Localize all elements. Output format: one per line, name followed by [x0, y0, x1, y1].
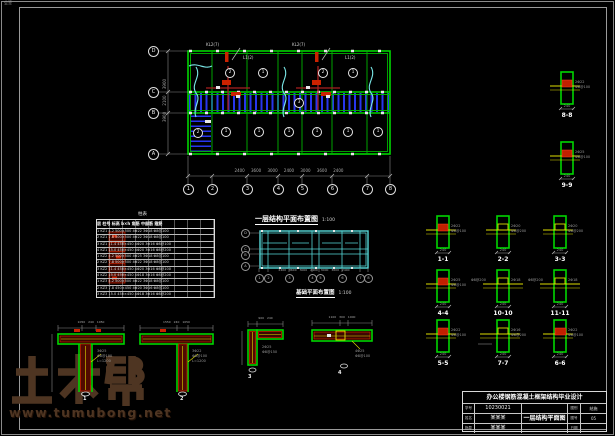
axis-bubble: 1	[183, 184, 194, 195]
section-5-5: 240 2Φ22 Φ8@100	[426, 320, 466, 358]
section-label: 3-3	[546, 256, 574, 263]
section-3-3: 240 2Φ20 Φ8@200	[543, 216, 583, 254]
section-note: 2Φ22	[575, 80, 584, 84]
main-plan-title: 一层结构平面布置图1:100	[255, 206, 335, 225]
field-label: 日期	[568, 424, 581, 433]
field-value: 某某某	[475, 424, 522, 433]
section-dim: 240	[557, 248, 564, 252]
section-note: 2Φ25	[575, 150, 584, 154]
detail-note: Φ8@150	[262, 350, 277, 354]
beam-note: KL2(7)	[206, 42, 219, 47]
joint-detail-label: 3	[248, 374, 251, 380]
section-note: 2Φ18	[568, 278, 577, 282]
section-1-1: 240 2Φ22 Φ8@100	[426, 216, 466, 254]
column-detail-crosses	[206, 48, 340, 110]
detail-note: Φ8@100	[97, 354, 112, 358]
axis-bubble-foundation: 6	[338, 274, 347, 283]
axis-bubble-foundation: 8	[364, 274, 373, 283]
section-7-7: 240 2Φ16 Φ8@200	[478, 320, 526, 358]
corner-note: 会签	[4, 0, 12, 6]
section-note: Φ8@200	[528, 278, 543, 282]
section-dim: 240	[440, 352, 447, 356]
main-plan-grid	[188, 51, 390, 154]
section-dim: 240	[564, 174, 571, 178]
section-2-2: 240 2Φ20 Φ8@200	[486, 216, 526, 254]
dim-chain-left: 3900 2100 3900	[162, 49, 167, 152]
field-value: 05	[581, 414, 606, 423]
section-label: 4-4	[429, 310, 457, 317]
axis-bubble-foundation: B	[241, 251, 250, 260]
main-plan-scale: 1:100	[322, 218, 335, 223]
section-8-8: 240 2Φ22 Φ8@100	[550, 72, 590, 110]
field-label: 图别	[568, 404, 581, 413]
section-dim: 240	[564, 104, 571, 108]
axis-bubble-foundation: A	[241, 262, 250, 271]
drawing-name-cell	[522, 404, 568, 413]
joint-detail-label: 1	[83, 396, 86, 402]
slab-number: 2	[318, 68, 328, 78]
detail-note: L=1200	[97, 359, 111, 363]
joint-detail-dim: 1050 240 1050	[58, 320, 124, 324]
slab-number: 1	[312, 127, 322, 137]
section-6-6: 240 2Φ22 Φ8@100	[543, 320, 583, 358]
section-dim: 240	[557, 352, 564, 356]
section-dim: 240	[500, 302, 507, 306]
section-label: 7-7	[489, 360, 517, 367]
title-block-row: 学号 10230021 图别 结施	[463, 404, 606, 414]
field-value	[581, 424, 606, 433]
cad-sheet: 会签 www.tumubong.net	[0, 0, 615, 436]
axis-bubble-foundation: 3	[285, 274, 294, 283]
joint-detail-dim: 900 240	[248, 316, 283, 320]
section-note: Φ8@100	[451, 283, 466, 287]
section-11-11: 240 2Φ18 Φ8@200	[528, 270, 580, 308]
joint-detail-label: 4	[338, 370, 341, 376]
field-value: 某某某	[475, 414, 522, 423]
axis-bubble: 4	[273, 184, 284, 195]
title-block-project: 办公楼钢筋混凝土框架结构毕业设计	[463, 392, 606, 404]
section-note: Φ8@200	[568, 229, 583, 233]
slab-number: 2	[193, 128, 203, 138]
section-label: 1-1	[429, 256, 457, 263]
section-label: 6-6	[546, 360, 574, 367]
section-label: 11-11	[546, 310, 574, 317]
joint-detail-4: 4Φ25 Φ8@100	[312, 320, 372, 368]
axis-bubble-foundation: 1	[255, 274, 264, 283]
axis-bubble: D	[148, 46, 159, 57]
joint-detail-2: 3Φ22 Φ8@100 L=1200	[140, 325, 213, 396]
detail-note: 3Φ25	[97, 349, 106, 353]
foundation-plan-scale: 1:100	[339, 291, 352, 296]
axis-bubble: B	[148, 108, 159, 119]
field-value: 10230021	[475, 404, 522, 413]
section-note: 2Φ22	[568, 328, 577, 332]
section-dim: 240	[440, 248, 447, 252]
axis-bubble: 2	[207, 184, 218, 195]
field-value: 结施	[581, 404, 606, 413]
detail-note: 3Φ22	[192, 349, 201, 353]
section-dim: 240	[440, 302, 447, 306]
axis-bubble: 3	[242, 184, 253, 195]
section-label: 9-9	[553, 182, 581, 189]
joint-detail-dim: 1100 300 1000	[312, 315, 372, 319]
table-header: 层 柱号 标高 b×h 角筋 中部筋 箍筋	[97, 220, 214, 229]
field-label: 学号	[463, 404, 475, 413]
section-note: 2Φ18	[511, 278, 520, 282]
axis-bubble: 7	[362, 184, 373, 195]
section-note: 2Φ20	[511, 224, 520, 228]
slab-number: 1	[373, 127, 383, 137]
section-note: 2Φ25	[451, 278, 460, 282]
axis-bubble: 8	[385, 184, 396, 195]
section-note: 2Φ16	[511, 328, 520, 332]
section-note: Φ8@100	[451, 333, 466, 337]
axis-bubble-foundation: D	[241, 229, 250, 238]
detail-note: L=1200	[192, 359, 206, 363]
section-label: 10-10	[489, 310, 517, 317]
joint-detail-3: 2Φ25 Φ8@150	[242, 321, 283, 372]
drawing-name: 一层结构平面图	[522, 414, 568, 423]
joint-detail-label: 2	[180, 396, 183, 402]
section-note: 2Φ22	[451, 224, 460, 228]
section-note: Φ8@100	[568, 333, 583, 337]
dim-chain-bottom: 2400 3600 3000 2400 3000 3600 2400	[188, 168, 390, 173]
section-dim: 240	[500, 248, 507, 252]
section-dim: 240	[500, 352, 507, 356]
section-dim: 240	[557, 302, 564, 306]
slab-number: 2	[225, 68, 235, 78]
section-note: 2Φ20	[568, 224, 577, 228]
title-block-row: 姓名 某某某 一层结构平面图 图号 05	[463, 414, 606, 424]
beam-note: L1(2)	[345, 55, 355, 60]
detail-note: Φ8@100	[355, 354, 370, 358]
slab-number: 1	[348, 68, 358, 78]
title-block: 办公楼钢筋混凝土框架结构毕业设计 学号 10230021 图别 结施 姓名 某某…	[462, 391, 607, 432]
axis-bubble: C	[148, 87, 159, 98]
slab-number: 3	[294, 98, 304, 108]
axis-bubble: A	[148, 149, 159, 160]
section-note: Φ8@200	[471, 278, 486, 282]
detail-note: Φ8@100	[192, 354, 207, 358]
axis-bubble-foundation: 5	[316, 274, 325, 283]
section-label: 5-5	[429, 360, 457, 367]
axis-bubble: 6	[327, 184, 338, 195]
table-row: 3 KZ3 15.0 450×450 4Φ18 3Φ16 Φ8@200	[97, 292, 214, 297]
field-label: 姓名	[463, 414, 475, 423]
section-10-10: 240 2Φ18 Φ8@200	[471, 270, 523, 308]
foundation-plan	[250, 231, 368, 272]
slab-number: 1	[254, 127, 264, 137]
foundation-plan-title-text: 基础平面布置图	[296, 290, 335, 298]
section-label: 8-8	[553, 112, 581, 119]
title-block-row: 指导 某某某 日期	[463, 424, 606, 433]
beam-note: L1(2)	[243, 55, 253, 60]
joint-detail-1: 3Φ25 Φ8@100 L=1200	[52, 325, 124, 396]
slab-number: 1	[258, 68, 268, 78]
section-label: 2-2	[489, 256, 517, 263]
slab-number: 1	[343, 127, 353, 137]
section-note: Φ8@100	[575, 155, 590, 159]
stair-break-lines	[189, 65, 373, 117]
detail-note: 4Φ25	[355, 349, 364, 353]
column-table-title: 柱表	[138, 211, 147, 217]
dim-chain-foundation: 2400 3600 3000 2400 3000 3600 2400	[260, 268, 368, 272]
main-plan-title-text: 一层结构平面布置图	[255, 215, 318, 225]
slab-number: 1	[221, 127, 231, 137]
column-schedule-table: 层 柱号 标高 b×h 角筋 中部筋 箍筋 1 KZ1 4.2 500×500 …	[96, 219, 215, 298]
section-note: Φ8@200	[511, 333, 526, 337]
axis-bubble: 5	[297, 184, 308, 195]
detail-note: 2Φ25	[262, 345, 271, 349]
slab-number: 1	[284, 127, 294, 137]
beam-note: KL2(7)	[292, 42, 305, 47]
field-label: 指导	[463, 424, 475, 433]
section-note: Φ8@100	[451, 229, 466, 233]
section-note: Φ8@100	[575, 85, 590, 89]
drawing-name-cell	[522, 424, 568, 433]
joint-detail-dim: 1550 240 1050	[140, 320, 213, 324]
field-label: 图号	[568, 414, 581, 423]
axis-bubble-foundation: 2	[264, 274, 273, 283]
section-note: Φ8@200	[511, 229, 526, 233]
section-9-9: 240 2Φ25 Φ8@100	[550, 142, 590, 180]
section-4-4: 240 2Φ25 Φ8@100	[426, 270, 466, 308]
section-note: 2Φ22	[451, 328, 460, 332]
